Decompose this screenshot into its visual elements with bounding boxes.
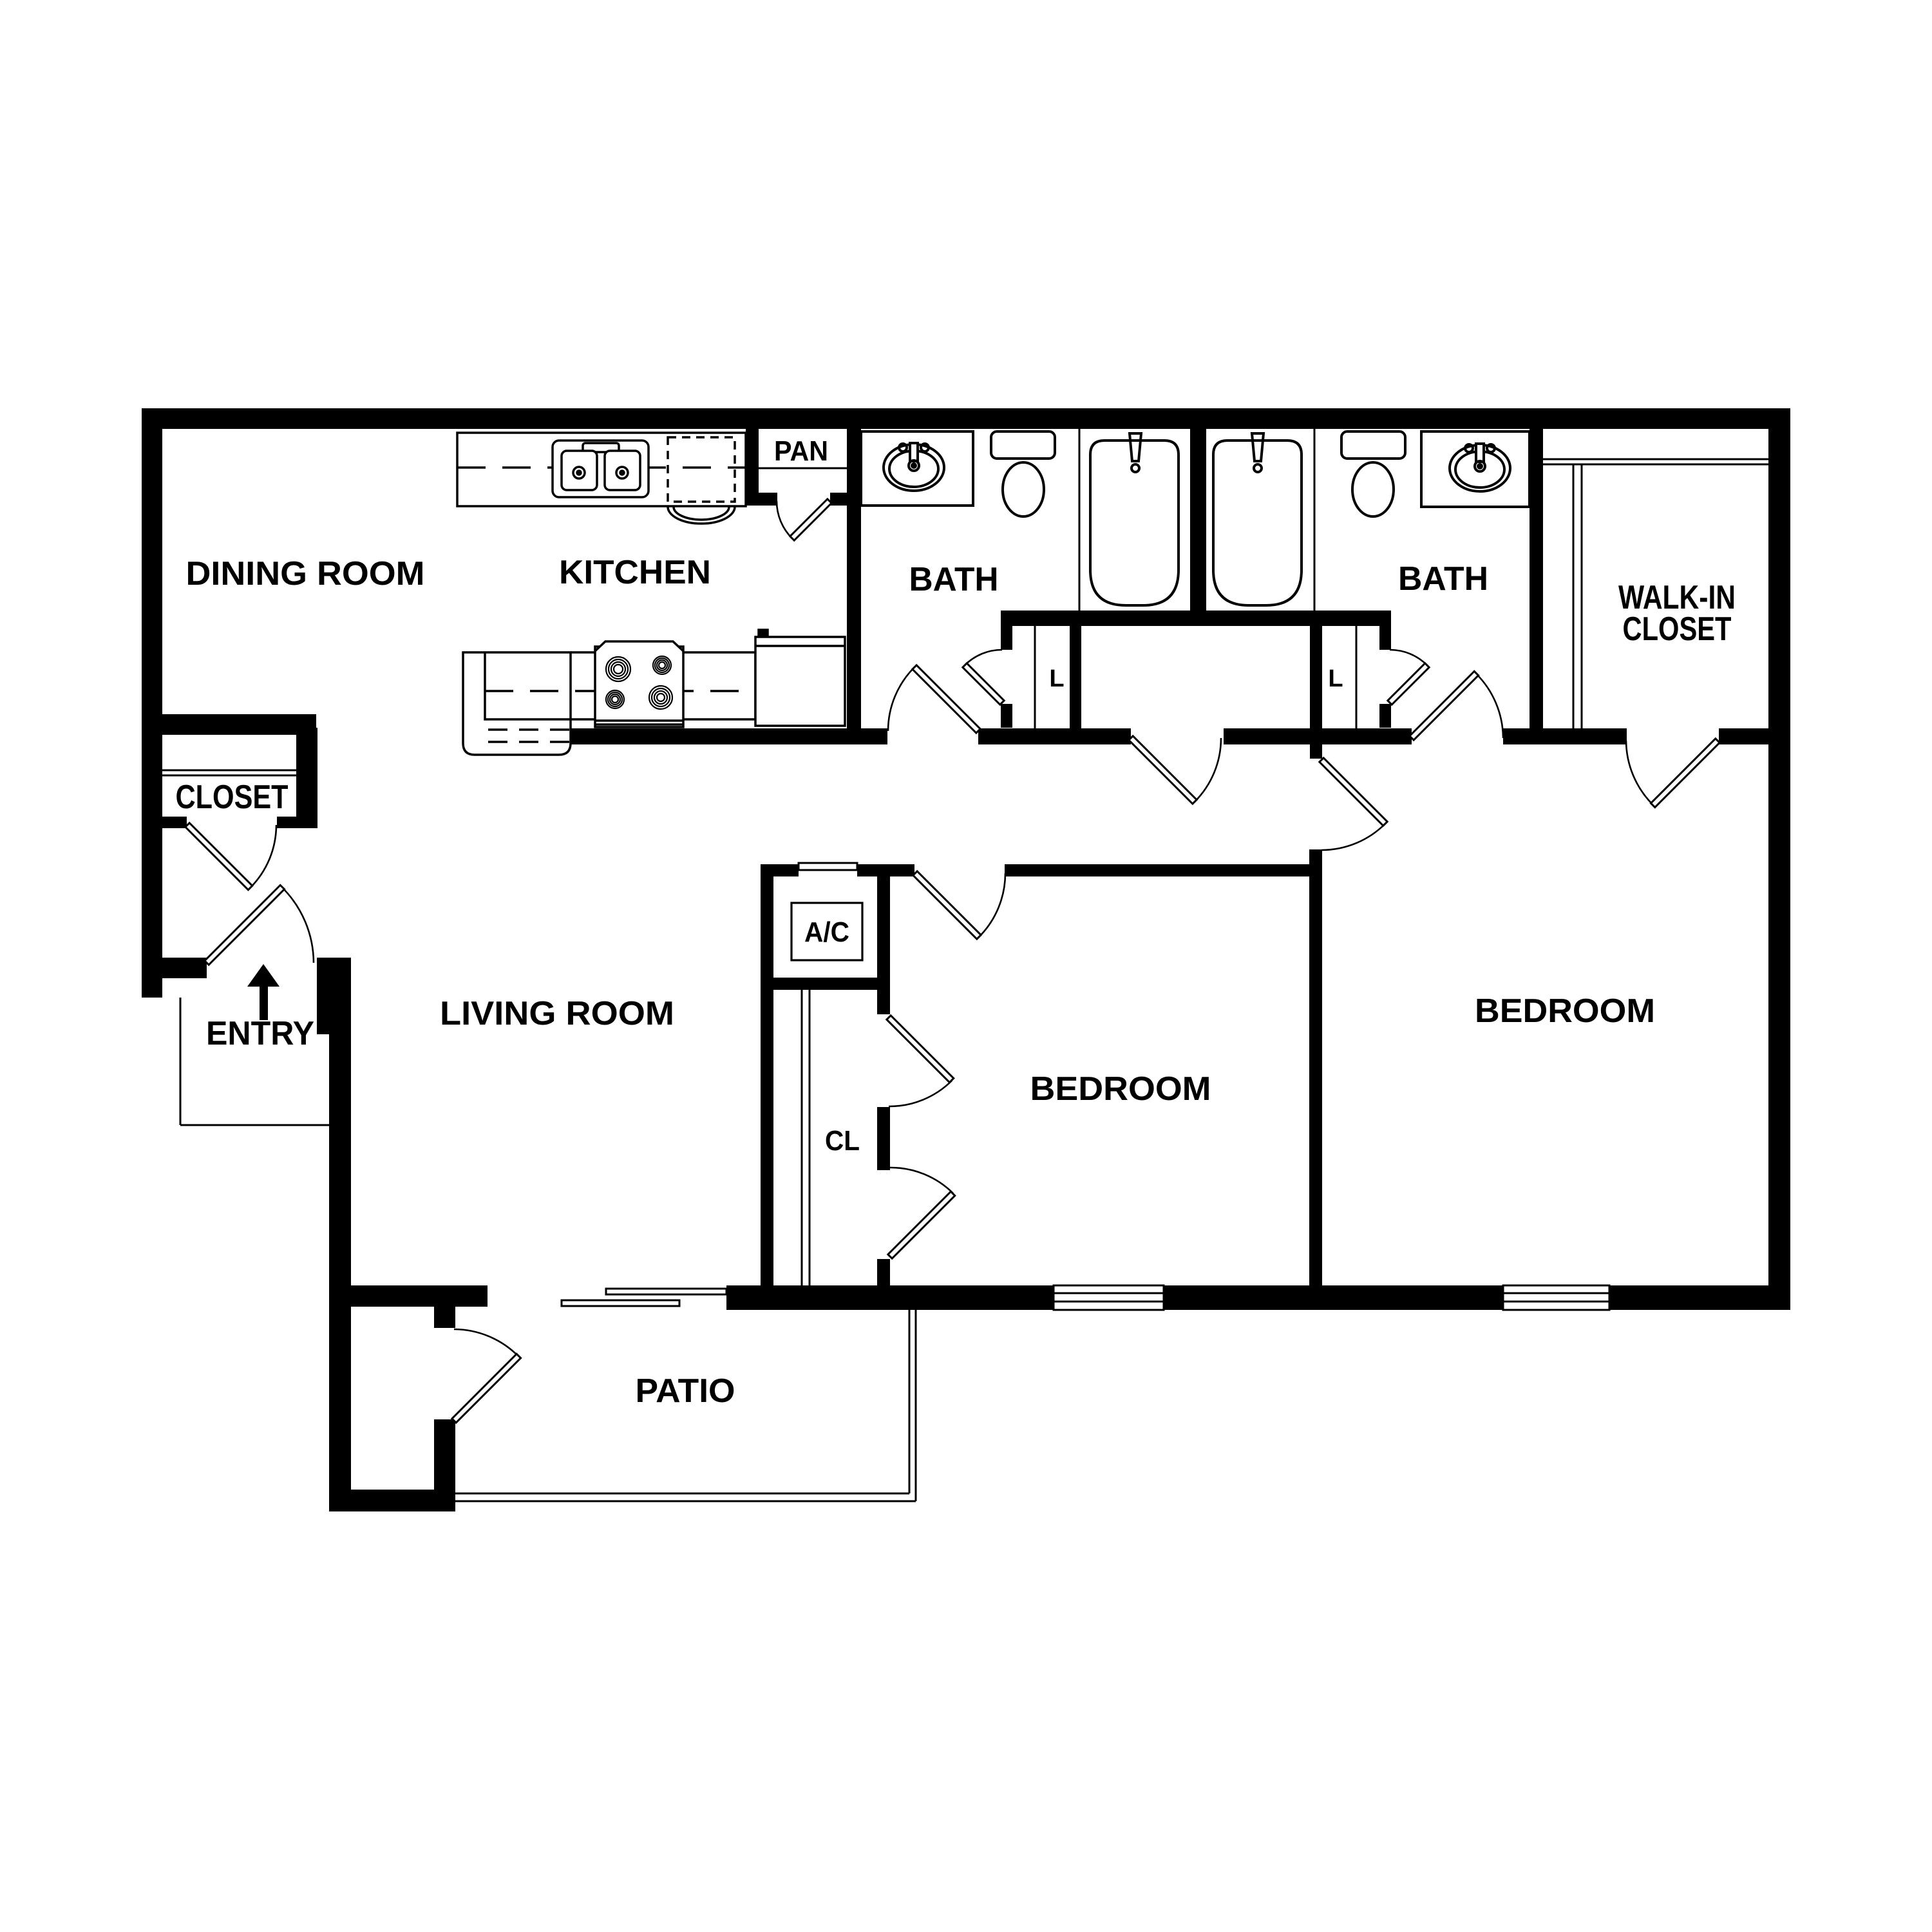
svg-text:PAN: PAN [774,435,828,467]
svg-text:A/C: A/C [804,916,849,948]
svg-text:DINING ROOM: DINING ROOM [186,555,425,592]
svg-text:CLOSET: CLOSET [176,779,289,816]
svg-text:L: L [1049,665,1064,692]
svg-text:BATH: BATH [909,561,999,598]
svg-text:BEDROOM: BEDROOM [1030,1070,1211,1108]
svg-text:ENTRY: ENTRY [206,1015,314,1052]
svg-text:BATH: BATH [1398,560,1488,598]
svg-text:PATIO: PATIO [636,1372,735,1410]
svg-text:KITCHEN: KITCHEN [559,554,711,591]
svg-text:BEDROOM: BEDROOM [1475,992,1655,1030]
svg-text:L: L [1328,665,1343,692]
svg-text:CLOSET: CLOSET [1623,611,1732,648]
svg-text:CL: CL [825,1125,860,1157]
svg-text:LIVING ROOM: LIVING ROOM [440,995,674,1032]
